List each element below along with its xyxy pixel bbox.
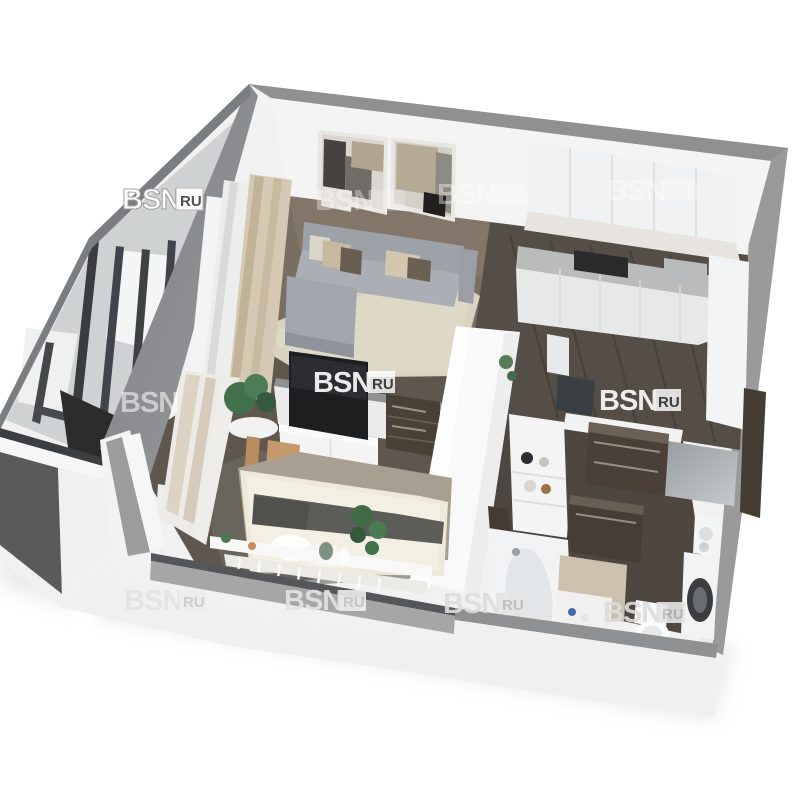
- svg-text:BSN: BSN: [607, 175, 665, 207]
- svg-text:BSN: BSN: [315, 185, 373, 217]
- svg-text:RU: RU: [662, 606, 684, 623]
- svg-text:RU: RU: [658, 394, 680, 411]
- svg-text:RU: RU: [502, 597, 524, 614]
- svg-text:RU: RU: [343, 594, 365, 611]
- svg-text:BSN: BSN: [284, 585, 342, 617]
- svg-text:BSN: BSN: [122, 184, 180, 216]
- svg-text:BSN: BSN: [603, 597, 661, 629]
- svg-text:BSN: BSN: [443, 588, 501, 620]
- svg-text:RU: RU: [372, 376, 394, 393]
- svg-text:BSN: BSN: [120, 387, 178, 419]
- svg-text:BSN: BSN: [437, 179, 495, 211]
- svg-text:BSN: BSN: [313, 367, 371, 399]
- svg-text:RU: RU: [180, 193, 202, 210]
- svg-text:RU: RU: [183, 594, 205, 611]
- svg-text:BSN: BSN: [599, 385, 657, 417]
- svg-text:BSN: BSN: [124, 585, 182, 617]
